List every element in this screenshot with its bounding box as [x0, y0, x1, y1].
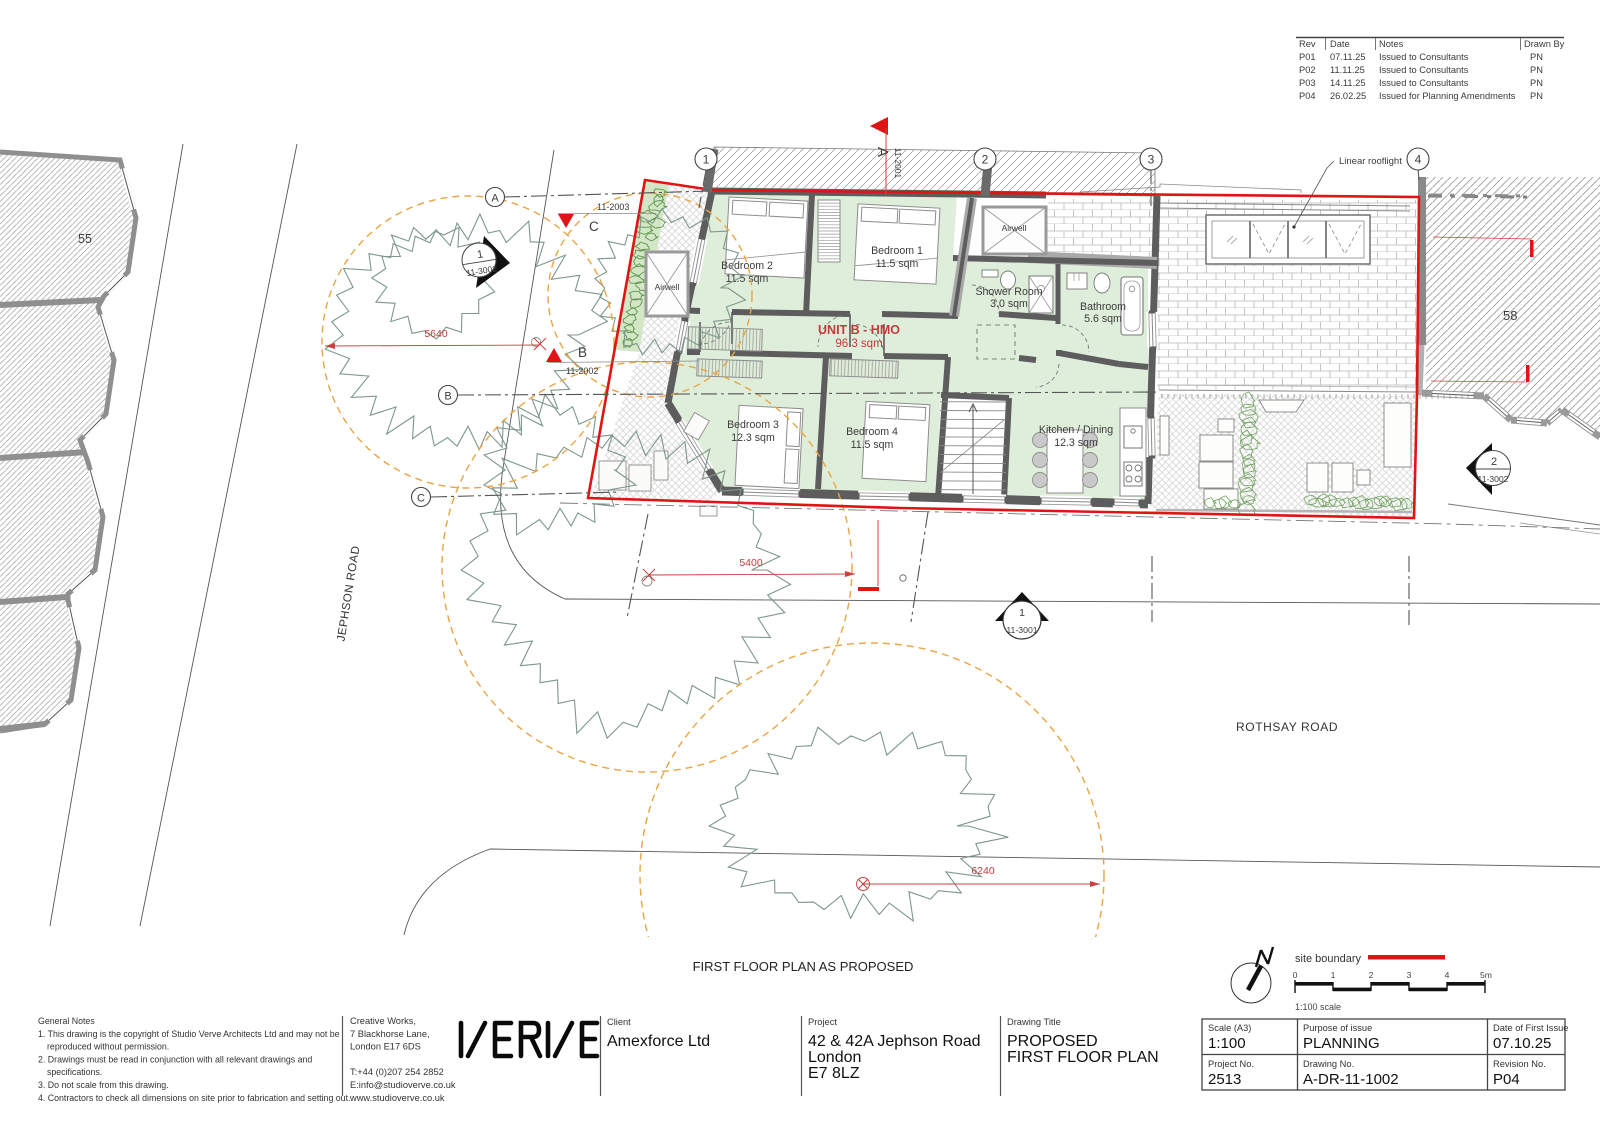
svg-text:4: 4: [1415, 153, 1422, 167]
svg-text:C: C: [417, 493, 425, 505]
svg-text:4: 4: [1445, 970, 1450, 980]
svg-text:07.11.25: 07.11.25: [1330, 52, 1366, 62]
svg-text:London E17 6DS: London E17 6DS: [350, 1042, 421, 1052]
svg-text:1: 1: [1019, 607, 1025, 619]
svg-text:PROPOSED: PROPOSED: [1007, 1033, 1098, 1050]
svg-text:96.3 sqm: 96.3 sqm: [835, 338, 882, 350]
svg-text:Kitchen / Dining: Kitchen / Dining: [1039, 424, 1113, 436]
svg-text:Bedroom 1: Bedroom 1: [871, 245, 923, 257]
svg-text:2. Drawings must be read in co: 2. Drawings must be read in conjunction …: [38, 1054, 312, 1064]
svg-text:Drawn By: Drawn By: [1524, 39, 1565, 49]
svg-text:specifications.: specifications.: [47, 1067, 102, 1077]
svg-text:Bathroom: Bathroom: [1080, 301, 1126, 313]
svg-text:FIRST FLOOR PLAN AS PROPOSED: FIRST FLOOR PLAN AS PROPOSED: [693, 959, 914, 974]
svg-text:11.11.25: 11.11.25: [1330, 65, 1365, 75]
svg-text:55: 55: [78, 232, 92, 246]
svg-text:3. Do not scale from this draw: 3. Do not scale from this drawing.: [38, 1080, 169, 1090]
svg-text:Issued to Consultants: Issued to Consultants: [1379, 65, 1469, 75]
svg-text:Rev: Rev: [1299, 39, 1316, 49]
svg-text:2: 2: [1369, 970, 1374, 980]
svg-text:PN: PN: [1530, 91, 1543, 101]
svg-text:11-3001: 11-3001: [1006, 625, 1037, 635]
svg-text:site boundary: site boundary: [1295, 953, 1362, 965]
svg-text:FIRST FLOOR PLAN: FIRST FLOOR PLAN: [1007, 1049, 1159, 1066]
svg-text:A: A: [491, 193, 499, 205]
svg-text:PN: PN: [1530, 65, 1543, 75]
svg-text:12.3 sqm: 12.3 sqm: [731, 432, 775, 444]
svg-text:4. Contractors to check all di: 4. Contractors to check all dimensions o…: [38, 1093, 350, 1103]
svg-text:Issued to Consultants: Issued to Consultants: [1379, 52, 1469, 62]
svg-text:Date: Date: [1330, 39, 1350, 49]
svg-text:42 & 42A Jephson Road: 42 & 42A Jephson Road: [808, 1033, 981, 1050]
svg-text:General Notes: General Notes: [38, 1016, 95, 1026]
svg-text:11-2002: 11-2002: [566, 366, 598, 376]
svg-text:C: C: [589, 219, 599, 234]
svg-text:11-2003: 11-2003: [597, 202, 629, 212]
svg-text:11-2001: 11-2001: [893, 148, 903, 179]
svg-text:1: 1: [703, 153, 710, 167]
svg-text:3: 3: [1148, 153, 1155, 167]
svg-text:PN: PN: [1530, 78, 1543, 88]
svg-text:ROTHSAY ROAD: ROTHSAY ROAD: [1236, 720, 1338, 734]
svg-text:5m: 5m: [1480, 970, 1492, 980]
svg-text:5.6 sqm: 5.6 sqm: [1084, 313, 1122, 325]
svg-text:P04: P04: [1299, 91, 1316, 101]
svg-text:Drawing No.: Drawing No.: [1303, 1059, 1354, 1069]
svg-text:A-DR-11-1002: A-DR-11-1002: [1303, 1071, 1399, 1088]
svg-text:6240: 6240: [971, 865, 995, 877]
svg-text:Project No.: Project No.: [1208, 1059, 1254, 1069]
svg-text:London: London: [808, 1049, 861, 1066]
svg-text:Bedroom 4: Bedroom 4: [846, 426, 898, 438]
svg-text:Issued for Planning Amendments: Issued for Planning Amendments: [1379, 91, 1516, 101]
svg-text:Bedroom 3: Bedroom 3: [727, 419, 779, 431]
svg-text:E:info@studioverve.co.uk: E:info@studioverve.co.uk: [350, 1080, 456, 1090]
svg-text:P02: P02: [1299, 65, 1316, 75]
svg-text:A: A: [874, 147, 891, 157]
svg-text:58: 58: [1503, 308, 1517, 323]
svg-text:5640: 5640: [424, 328, 448, 340]
svg-text:3: 3: [1407, 970, 1412, 980]
svg-text:2: 2: [982, 153, 989, 167]
svg-text:1: 1: [1331, 970, 1336, 980]
svg-text:Notes: Notes: [1379, 39, 1404, 49]
svg-text:11.5 sqm: 11.5 sqm: [726, 273, 769, 285]
svg-text:P01: P01: [1299, 52, 1316, 62]
svg-text:www.studioverve.co.uk: www.studioverve.co.uk: [349, 1093, 445, 1103]
svg-text:T:+44 (0)207 254 2852: T:+44 (0)207 254 2852: [350, 1067, 444, 1077]
svg-text:1:100 scale: 1:100 scale: [1295, 1002, 1341, 1012]
svg-text:Project: Project: [808, 1017, 837, 1027]
svg-text:Date of First Issue: Date of First Issue: [1493, 1023, 1568, 1033]
svg-text:1. This drawing is the copyrig: 1. This drawing is the copyright of Stud…: [38, 1029, 340, 1039]
svg-text:Shower Room: Shower Room: [975, 286, 1042, 298]
svg-text:Creative Works,: Creative Works,: [350, 1016, 416, 1026]
svg-text:Scale (A3): Scale (A3): [1208, 1023, 1251, 1033]
svg-text:Issued to Consultants: Issued to Consultants: [1379, 78, 1469, 88]
svg-text:26.02.25: 26.02.25: [1330, 91, 1366, 101]
svg-text:1:100: 1:100: [1208, 1035, 1246, 1052]
svg-text:PN: PN: [1530, 52, 1543, 62]
svg-text:0: 0: [1293, 970, 1298, 980]
svg-text:2513: 2513: [1208, 1071, 1241, 1088]
svg-text:Airwell: Airwell: [1002, 223, 1027, 233]
svg-text:11-3002: 11-3002: [1478, 474, 1509, 484]
svg-text:Linear rooflight: Linear rooflight: [1339, 156, 1402, 167]
svg-text:11.5 sqm: 11.5 sqm: [876, 258, 919, 270]
svg-text:B: B: [444, 391, 451, 403]
svg-text:Airwell: Airwell: [655, 282, 680, 292]
svg-text:14.11.25: 14.11.25: [1330, 78, 1366, 88]
svg-text:Purpose of issue: Purpose of issue: [1303, 1023, 1372, 1033]
svg-text:P03: P03: [1299, 78, 1316, 88]
svg-text:Revision No.: Revision No.: [1493, 1059, 1546, 1069]
svg-text:5400: 5400: [739, 557, 763, 569]
svg-text:UNIT B - HMO: UNIT B - HMO: [818, 323, 900, 337]
svg-text:12.3 sqm: 12.3 sqm: [1054, 437, 1098, 449]
svg-text:07.10.25: 07.10.25: [1493, 1035, 1551, 1052]
svg-text:Drawing Title: Drawing Title: [1007, 1017, 1061, 1027]
svg-text:3.0 sqm: 3.0 sqm: [990, 298, 1028, 310]
svg-text:reproduced without permission.: reproduced without permission.: [47, 1042, 169, 1052]
svg-text:P04: P04: [1493, 1071, 1520, 1088]
svg-text:11.5 sqm: 11.5 sqm: [851, 439, 894, 451]
svg-text:B: B: [578, 345, 587, 360]
svg-text:2: 2: [1491, 456, 1497, 468]
svg-text:Amexforce Ltd: Amexforce Ltd: [607, 1033, 710, 1050]
svg-text:7 Blackhorse Lane,: 7 Blackhorse Lane,: [350, 1029, 430, 1039]
svg-text:Client: Client: [607, 1017, 631, 1027]
svg-text:E7 8LZ: E7 8LZ: [808, 1065, 860, 1082]
svg-text:PLANNING: PLANNING: [1303, 1035, 1380, 1052]
